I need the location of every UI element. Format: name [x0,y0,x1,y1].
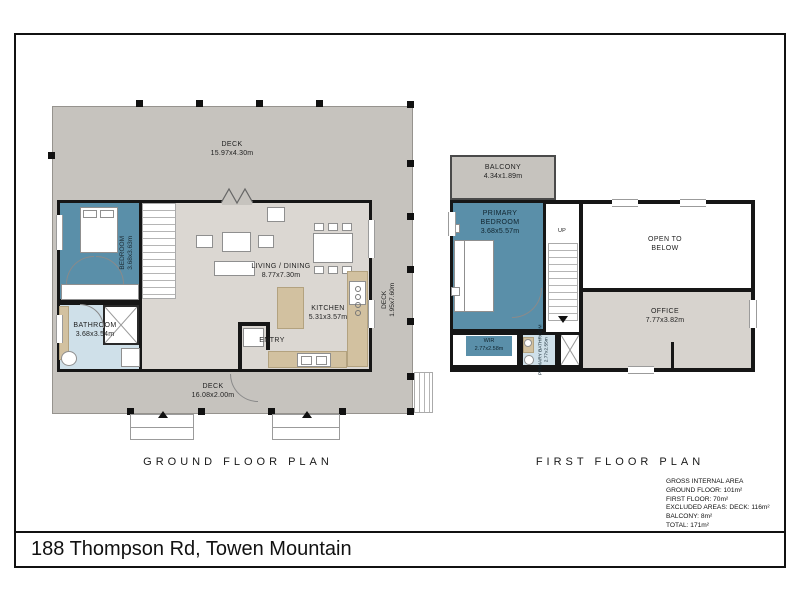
ff-wir-label: WIR 2.77x2.58m [466,336,512,356]
tv-unit [267,207,285,222]
gf-living-label: LIVING / DINING 8.77x7.30m [231,263,331,281]
gf-kitchen-label: KITCHEN 5.31x3.57m [293,305,363,323]
arrow-up-icon [158,411,168,418]
gf-bedroom-label: BEDROOM 3.68x3.63m [112,213,142,293]
pillow [464,241,465,311]
gf-title: GROUND FLOOR PLAN [138,456,338,468]
area-summary-line: TOTAL: 171m² [666,522,786,531]
window [368,220,375,258]
dining-table [313,233,353,263]
area-summary-line: BALCONY: 8m² [666,513,786,522]
area-summary-line: EXCLUDED AREAS: DECK: 116m² [666,504,786,513]
sofa [258,235,274,248]
deck-post [48,152,55,159]
deck-post [339,408,346,415]
wall [238,322,242,372]
window [680,199,706,207]
deck-post [407,101,414,108]
deck-post [316,100,323,107]
sink-icon [524,339,532,347]
wall [671,342,674,368]
gf-deck-top-label: DECK 15.97x4.30m [182,141,282,159]
window [56,215,63,250]
ff-office-label: OFFICE 7.77x3.82m [600,308,730,326]
washer-icon [121,348,140,367]
area-summary: GROSS INTERNAL AREA GROUND FLOOR: 101m² … [666,478,786,531]
stove-icon [349,281,366,305]
window [612,199,638,207]
pillow [83,210,97,218]
ff-primary-bathroom-label: PRIMARY BATHROOM 2.77x2.55m [532,334,556,366]
window [628,366,654,374]
window [448,212,456,236]
window [56,315,63,343]
deck-post [407,160,414,167]
deck-post [407,266,414,273]
floorplan-sheet: 188 Thompson Rd, Towen Mountain DECK 15.… [0,0,800,600]
window [368,300,375,328]
deck-post [407,213,414,220]
deck-post [136,100,143,107]
ff-open-below-label: OPEN TO BELOW [600,236,730,254]
deck-post [407,373,414,380]
deck-post [198,408,205,415]
gf-stairs [142,203,176,299]
bed [454,240,494,312]
deck-post [407,408,414,415]
ff-linen-closet [558,332,582,368]
arrow-down-icon [558,316,568,323]
sofa [222,232,251,252]
chair [342,223,352,231]
arrow-up-icon [302,411,312,418]
fixture-icon [451,287,460,296]
exterior-stair [130,414,194,440]
area-summary-line: GROSS INTERNAL AREA [666,478,786,487]
gf-deck-right-label: DECK 1.95x7.60m [374,260,404,340]
sofa [196,235,213,248]
exterior-stair-side [414,372,433,413]
ff-balcony-label: BALCONY 4.34x1.89m [453,164,553,182]
chair [328,223,338,231]
address-bar: 188 Thompson Rd, Towen Mountain [16,531,784,566]
chair [314,223,324,231]
wall [266,322,270,350]
ff-title: FIRST FLOOR PLAN [520,456,720,468]
ff-office [583,288,751,368]
ff-stairs [548,243,578,321]
closet-x-icon [561,335,579,365]
gf-entry-label: ENTRY [250,337,294,346]
deck-post [196,100,203,107]
area-summary-line: FIRST FLOOR: 70m² [666,496,786,505]
window [749,300,757,328]
area-summary-line: GROUND FLOOR: 101m² [666,487,786,496]
toilet-icon [61,351,77,366]
deck-post [407,318,414,325]
deck-post [256,100,263,107]
sink-icon [297,353,331,367]
ff-stairs-up-label: UP [548,228,576,235]
ff-primary-bedroom-label: PRIMARY BEDROOM 3.68x5.57m [462,210,538,236]
exterior-stair [272,414,340,440]
zigzag-opening-icon [221,187,253,205]
address-text: 188 Thompson Rd, Towen Mountain [31,538,352,561]
